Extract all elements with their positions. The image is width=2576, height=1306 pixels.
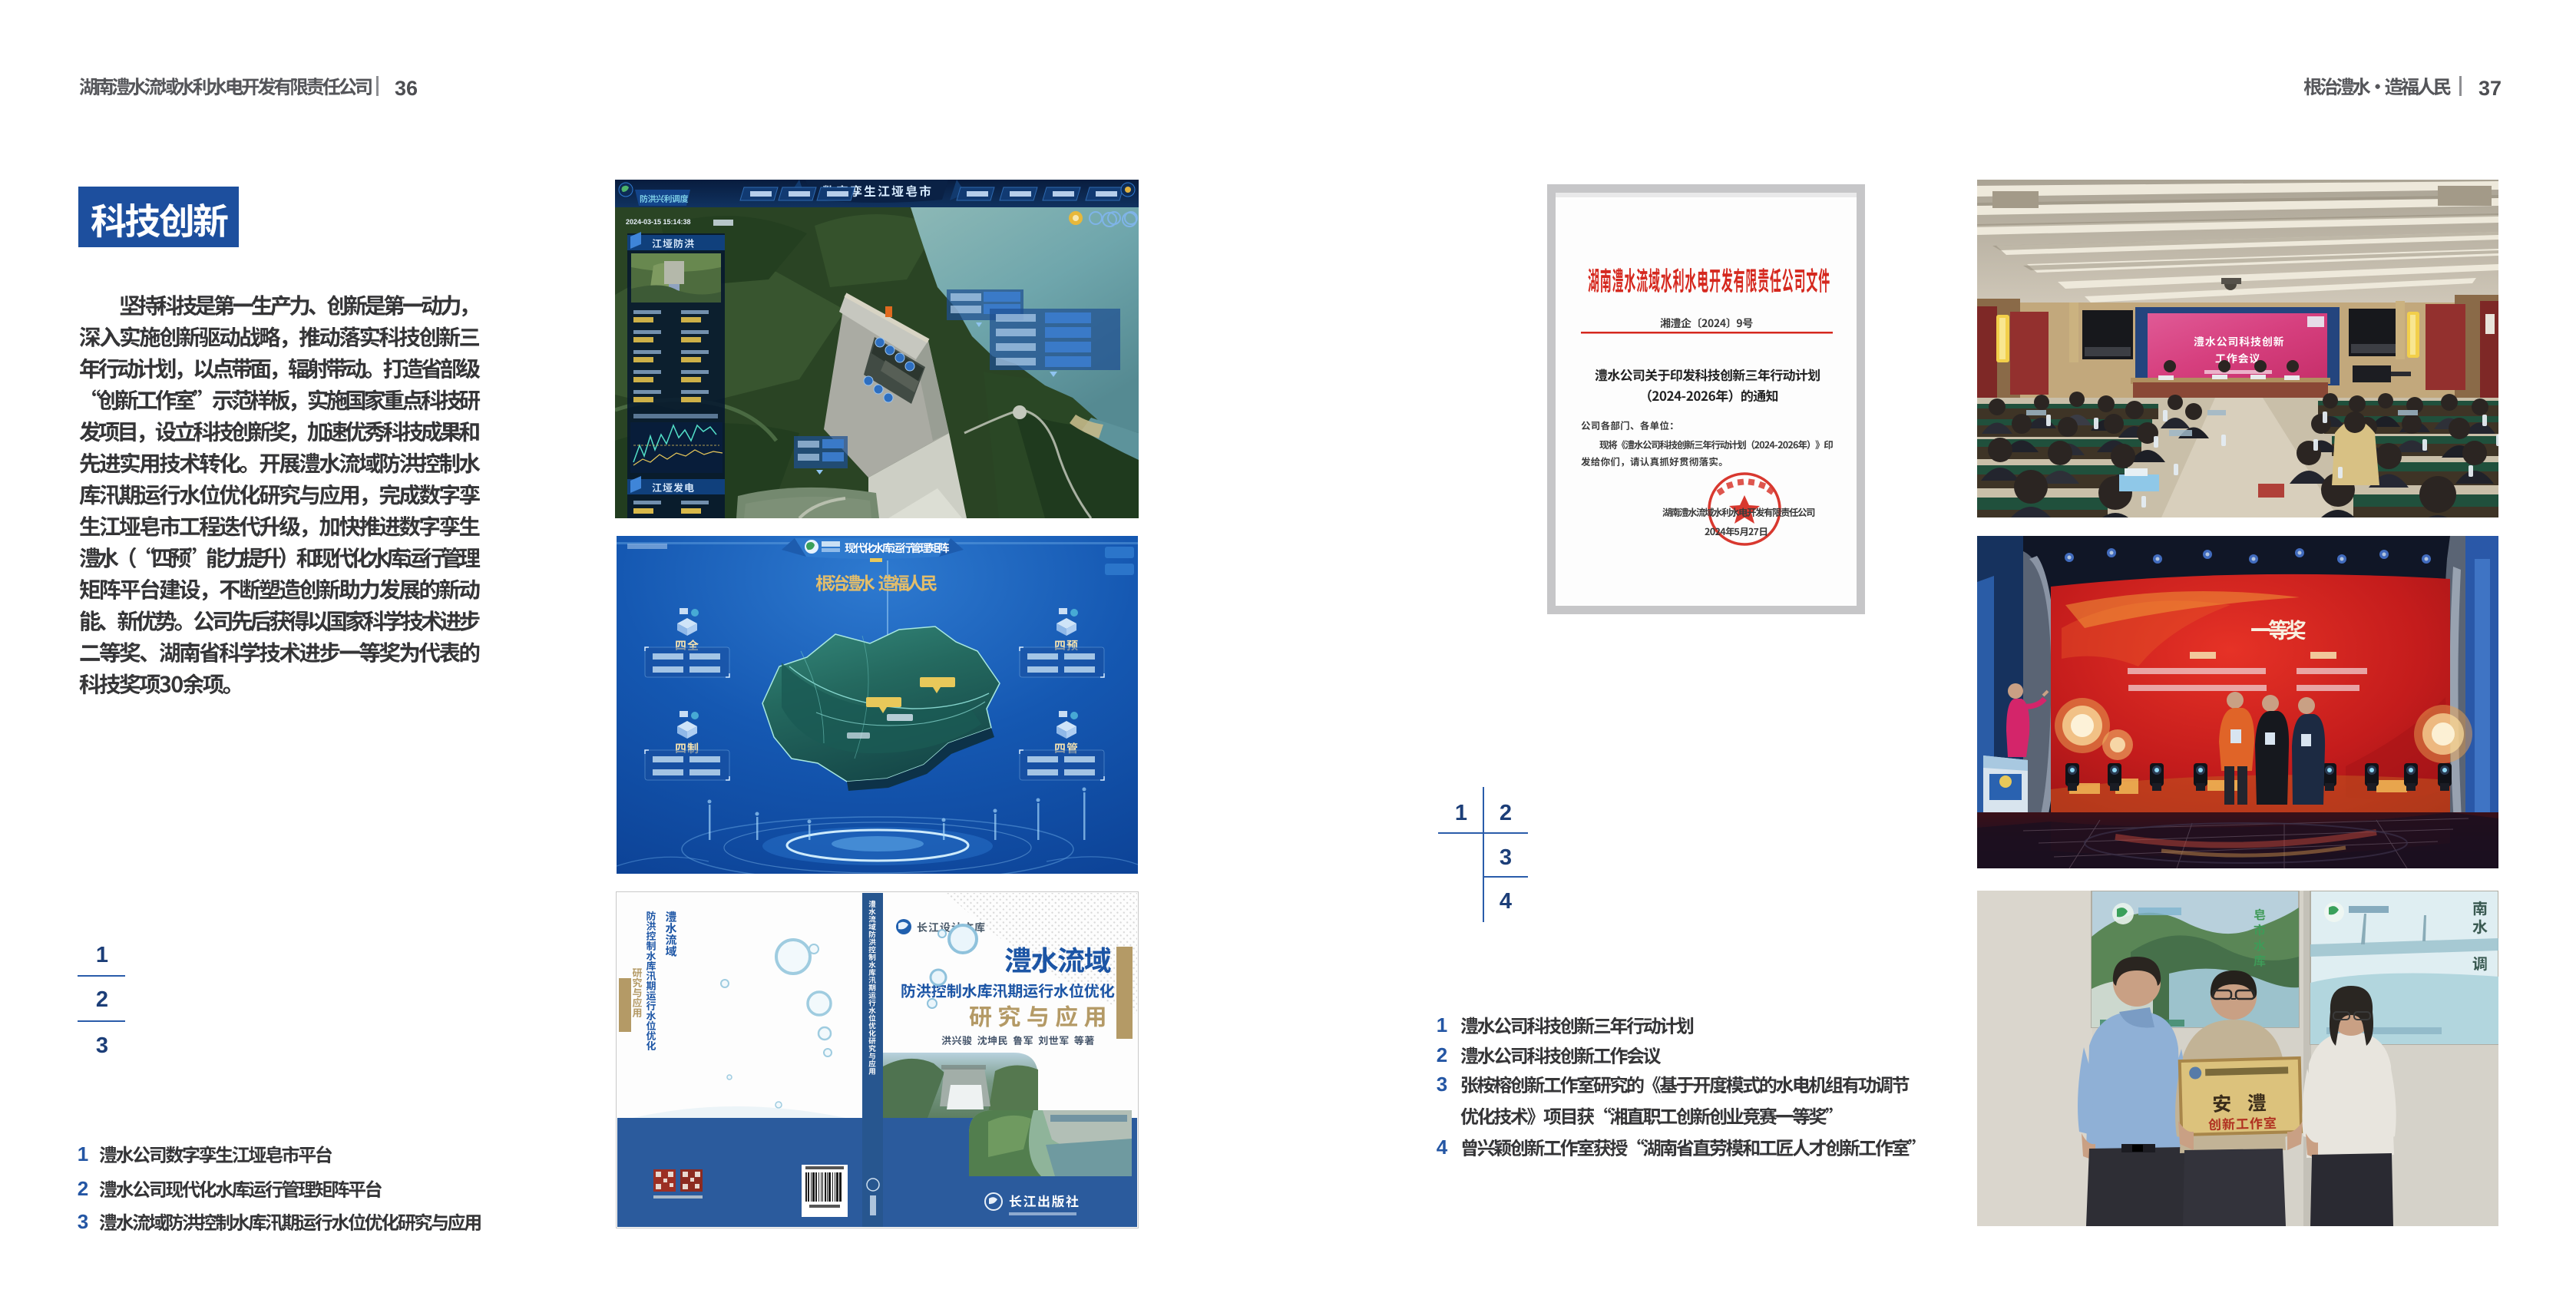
svg-text:2: 2 [1500,801,1512,825]
svg-text:2024-03-15 15:14:38: 2024-03-15 15:14:38 [626,218,691,226]
svg-text:2: 2 [96,987,108,1012]
svg-text:2: 2 [78,1177,88,1200]
svg-text:3: 3 [78,1210,88,1233]
svg-text:1: 1 [1455,801,1467,825]
svg-text:7: 7 [1754,527,1759,537]
svg-text:3: 3 [1437,1073,1447,1096]
svg-text:5: 5 [1734,527,1740,537]
svg-text:1: 1 [1437,1013,1447,1037]
svg-text:1: 1 [78,1142,88,1165]
svg-text:2: 2 [1437,1043,1447,1066]
svg-text:37: 37 [2478,77,2502,100]
svg-text:3: 3 [96,1033,108,1058]
svg-text:36: 36 [395,77,418,100]
svg-text:4: 4 [1500,889,1512,914]
svg-text:1: 1 [96,943,108,967]
svg-text:3: 3 [1500,845,1512,870]
svg-text:4: 4 [1437,1136,1448,1159]
